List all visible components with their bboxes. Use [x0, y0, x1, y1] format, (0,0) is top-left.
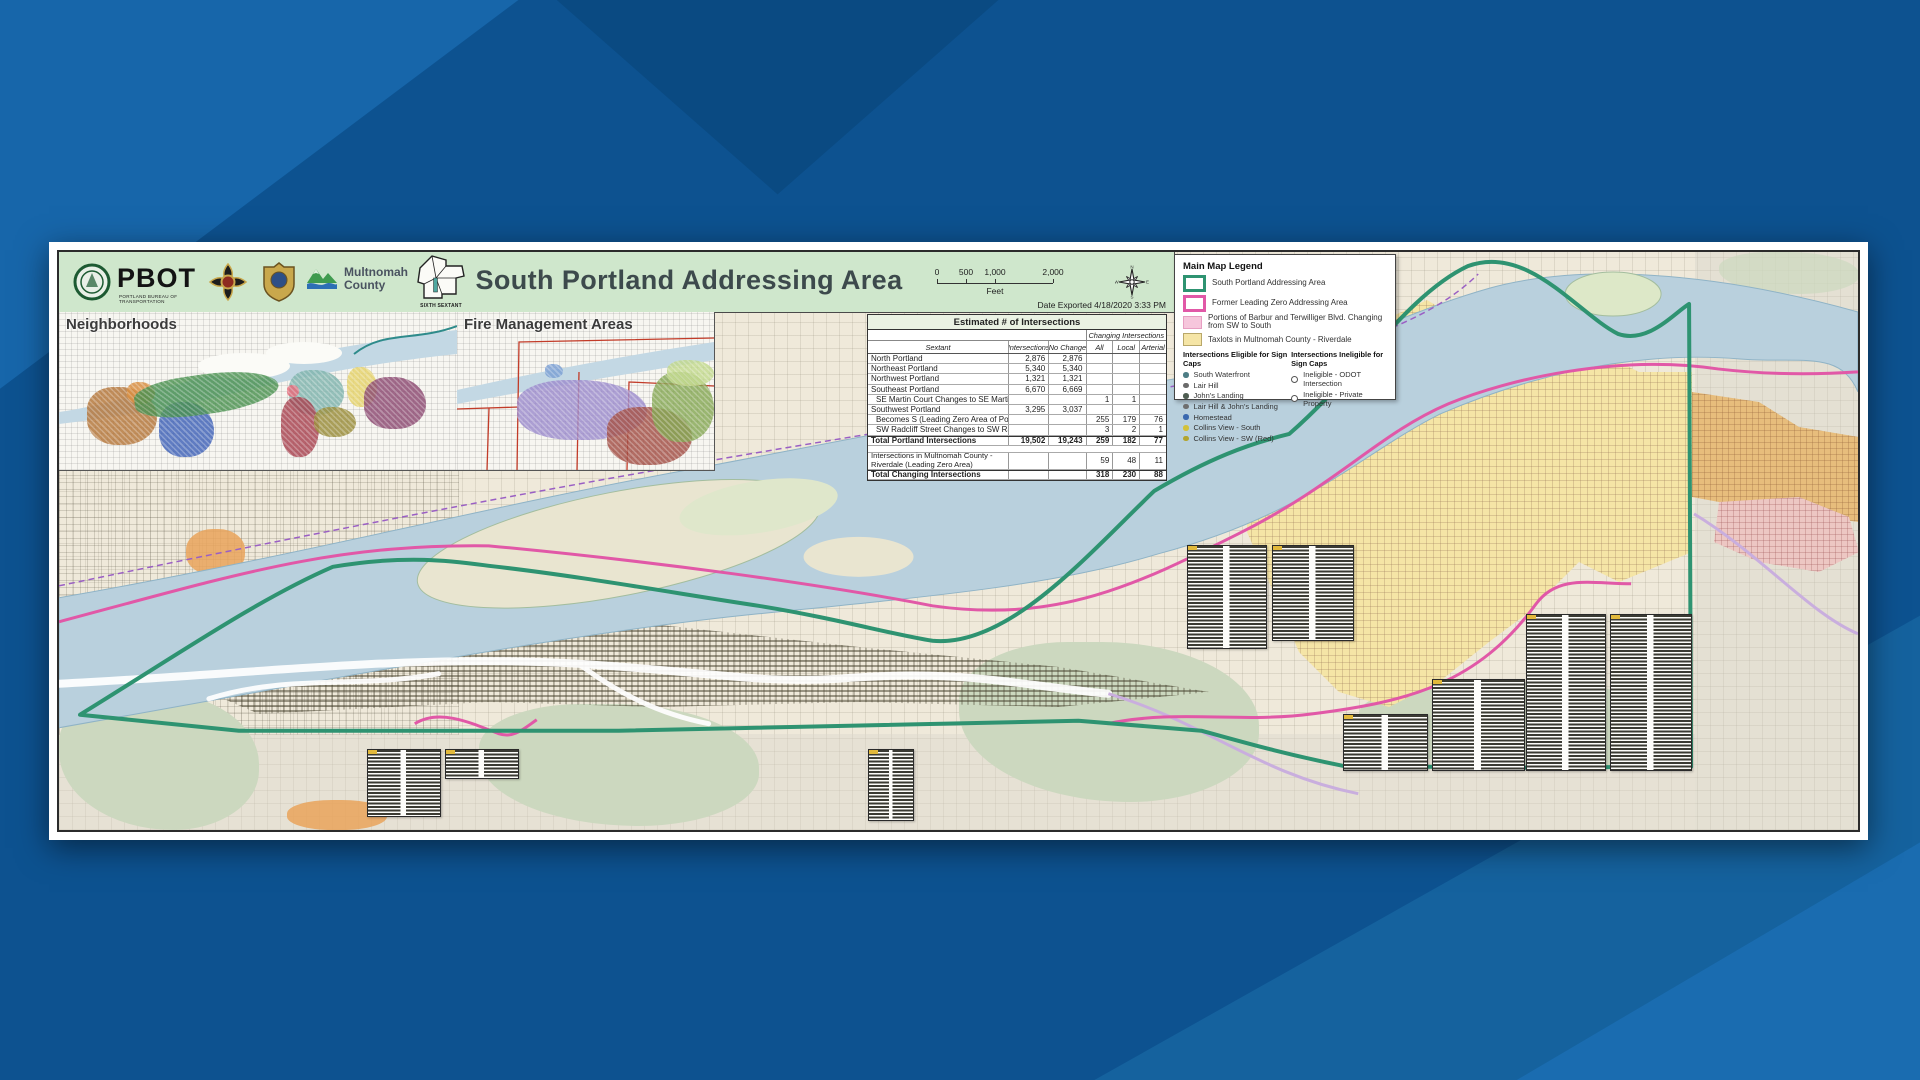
desktop-background: PBOT PORTLAND BUREAU OF TRANSPORTATION [0, 0, 1920, 1080]
scale-bar: 05001,0002,000 Feet [937, 267, 1053, 299]
page-title: South Portland Addressing Area [467, 265, 911, 296]
legend-ineligible-list: Ineligible - ODOT IntersectionIneligible… [1291, 370, 1387, 408]
sextant-caption: SIXTH SEXTANT [411, 303, 471, 309]
column-header: Intersections [1008, 341, 1048, 353]
portland-city-seal-icon [73, 263, 111, 301]
table-row: Northwest Portland1,3211,321 [868, 374, 1166, 384]
legend-swatch-icon [1183, 333, 1202, 346]
legend-eligible-list: South WaterfrontLair HillJohn's LandingL… [1183, 370, 1291, 443]
neighborhood-polygon [314, 407, 356, 437]
table-row: SW Radcliff Street Changes to SW Radclif… [868, 425, 1166, 435]
legend-list-item: Lair Hill [1183, 381, 1291, 390]
legend-list-item: Homestead [1183, 413, 1291, 422]
street-list-block [1432, 679, 1525, 771]
police-badge-icon [261, 262, 297, 302]
legend-swatch-icon [1183, 316, 1202, 329]
eligible-dot-icon [1183, 372, 1189, 378]
legend-list-item: John's Landing [1183, 391, 1291, 400]
scale-unit: Feet [937, 286, 1053, 296]
scale-line [937, 279, 1053, 284]
compass-rose-icon: N E S W [1115, 265, 1149, 299]
svg-text:W: W [1115, 280, 1119, 285]
street-list-block [868, 749, 914, 821]
street-list-block [445, 749, 519, 779]
table-group-header: Changing Intersections [868, 330, 1166, 341]
scale-ticks: 05001,0002,000 [937, 267, 1053, 277]
changing-intersections-header: Changing Intersections [1086, 330, 1166, 340]
street-list-block [1610, 614, 1692, 771]
legend-list-item: Ineligible - ODOT Intersection [1291, 370, 1387, 388]
legend-list-item: Lair Hill & John's Landing [1183, 402, 1291, 411]
neighborhood-polygon [281, 397, 319, 457]
legend-list-item: Ineligible - Private Property [1291, 390, 1387, 408]
ineligible-ring-icon [1291, 395, 1298, 402]
legend-list-item: Collins View - South [1183, 423, 1291, 432]
legend-area-row: Portions of Barbur and Terwilliger Blvd.… [1183, 314, 1387, 331]
eligible-dot-icon [1183, 414, 1189, 420]
column-header: Arterial [1139, 341, 1166, 353]
table-row: Total Portland Intersections19,50219,243… [868, 436, 1166, 446]
street-list-block [367, 749, 441, 817]
svg-text:N: N [1130, 265, 1133, 270]
map-document: PBOT PORTLAND BUREAU OF TRANSPORTATION [49, 242, 1868, 840]
legend-swatch-icon [1183, 295, 1206, 312]
scale-tick-label: 500 [959, 267, 973, 277]
pbot-logo: PBOT [117, 263, 196, 294]
island [1565, 272, 1661, 316]
legend-area-row: South Portland Addressing Area [1183, 275, 1387, 292]
table-title: Estimated # of Intersections [868, 315, 1166, 330]
table-row: Total Changing Intersections31823088 [868, 470, 1166, 480]
table-column-headers: Sextant Intersections No Change All Loca… [868, 341, 1166, 354]
street-list-block [1343, 714, 1428, 771]
table-rows: North Portland2,8762,876Northeast Portla… [868, 354, 1166, 480]
legend-areas: South Portland Addressing AreaFormer Lea… [1183, 275, 1387, 346]
table-row: Intersections in Multnomah County - Rive… [868, 453, 1166, 470]
fire-inset-title: Fire Management Areas [464, 316, 633, 333]
neighborhood-polygon [364, 377, 426, 429]
intersections-table: Estimated # of Intersections Changing In… [867, 314, 1167, 481]
fire-bureau-badge-icon [207, 261, 249, 303]
legend-eligible-header: Intersections Eligible for Sign Caps [1183, 350, 1291, 368]
island [804, 537, 914, 577]
table-row: Southeast Portland6,6706,669 [868, 385, 1166, 395]
multnomah-county-logo: Multnomah County [305, 265, 408, 293]
legend-ineligible-header: Intersections Ineligible for Sign Caps [1291, 350, 1387, 368]
legend-swatch-icon [1183, 275, 1206, 292]
street-list-block [1526, 614, 1606, 771]
scale-tick-label: 1,000 [984, 267, 1005, 277]
column-header: Local [1112, 341, 1139, 353]
table-row: SE Martin Court Changes to SE Martins Co… [868, 395, 1166, 405]
legend-area-row: Taxlots in Multnomah County - Riverdale [1183, 333, 1387, 346]
sextant-locator: SIXTH SEXTANT [411, 254, 471, 309]
eligible-dot-icon [1183, 436, 1189, 442]
eligible-dot-icon [1183, 393, 1189, 399]
eligible-dot-icon [1183, 404, 1189, 410]
scale-tick-label: 2,000 [1042, 267, 1063, 277]
legend-list-item: Collins View - SW (Red) [1183, 434, 1291, 443]
column-header: No Change [1048, 341, 1085, 353]
table-row: Southwest Portland3,2953,037 [868, 405, 1166, 415]
sextant-map-icon [412, 254, 470, 300]
legend-list-item: South Waterfront [1183, 370, 1291, 379]
legend-area-row: Former Leading Zero Addressing Area [1183, 295, 1387, 312]
multnomah-mountains-icon [305, 265, 339, 293]
table-row: Becomes S (Leading Zero Area of Portland… [868, 415, 1166, 425]
eligible-dot-icon [1183, 425, 1189, 431]
svg-text:S: S [1130, 295, 1133, 300]
svg-text:E: E [1146, 280, 1149, 285]
legend-title: Main Map Legend [1183, 261, 1387, 272]
table-row: Northeast Portland5,3405,340 [868, 364, 1166, 374]
neighborhood-polygon [287, 385, 299, 397]
map-frame: PBOT PORTLAND BUREAU OF TRANSPORTATION [57, 250, 1860, 832]
multnomah-county-label: Multnomah County [344, 266, 408, 291]
column-header: Sextant [868, 343, 1008, 353]
column-header: All [1086, 341, 1113, 353]
main-map-legend: Main Map Legend South Portland Addressin… [1174, 254, 1396, 400]
eligible-dot-icon [1183, 383, 1189, 389]
neighborhoods-inset-map: Neighborhoods [59, 312, 458, 471]
title-bar: PBOT PORTLAND BUREAU OF TRANSPORTATION [59, 252, 1175, 313]
fire-management-inset-map: Fire Management Areas [457, 312, 715, 471]
fire-zone-polygon [667, 360, 714, 386]
pbot-logo-subtitle: PORTLAND BUREAU OF TRANSPORTATION [119, 294, 209, 304]
table-row: North Portland2,8762,876 [868, 354, 1166, 364]
street-list-block [1272, 545, 1354, 641]
date-exported-label: Date Exported 4/18/2020 3:33 PM [1037, 300, 1166, 310]
ineligible-ring-icon [1291, 376, 1298, 383]
street-list-block [1187, 545, 1267, 649]
fire-zone-polygon [545, 364, 563, 378]
neighborhoods-inset-title: Neighborhoods [66, 316, 177, 333]
scale-tick-label: 0 [935, 267, 940, 277]
